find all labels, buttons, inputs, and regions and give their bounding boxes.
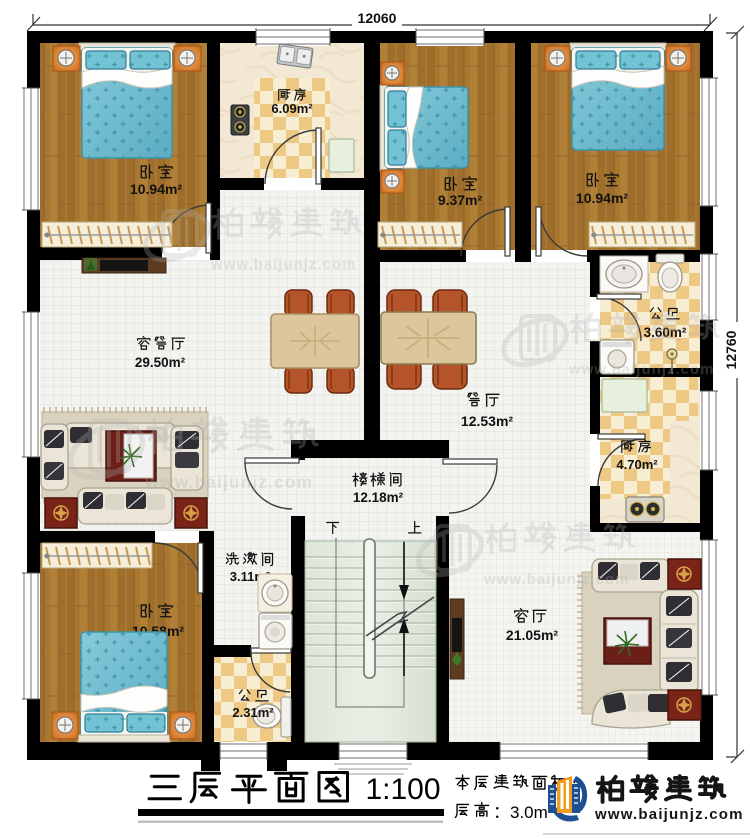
svg-text:12760: 12760	[723, 330, 739, 369]
svg-text:21.05m²: 21.05m²	[506, 627, 558, 643]
svg-text:10.94m²: 10.94m²	[576, 190, 628, 206]
svg-text:12060: 12060	[358, 10, 397, 26]
svg-text:www.baijunjz.com: www.baijunjz.com	[145, 472, 313, 492]
svg-text:29.50m²: 29.50m²	[135, 355, 186, 370]
svg-text:1:100: 1:100	[365, 773, 440, 806]
svg-text:6.09m²: 6.09m²	[271, 101, 313, 116]
svg-text:www.baijunjz.com: www.baijunjz.com	[594, 806, 744, 823]
svg-text:2.31m²: 2.31m²	[232, 705, 274, 720]
svg-text:9.37m²: 9.37m²	[438, 192, 483, 208]
svg-text:12.18m²: 12.18m²	[353, 490, 404, 505]
svg-text:www.baijunjz.com: www.baijunjz.com	[483, 571, 629, 588]
svg-text:www.baijunjz.com: www.baijunjz.com	[568, 361, 714, 378]
svg-text:10.94m²: 10.94m²	[130, 181, 182, 197]
svg-text:4.70m²: 4.70m²	[616, 457, 658, 472]
svg-text:www.baijunjz.com: www.baijunjz.com	[210, 256, 356, 273]
svg-text:12.53m²: 12.53m²	[461, 413, 513, 429]
svg-text:：3.0m: ：3.0m	[493, 803, 548, 822]
